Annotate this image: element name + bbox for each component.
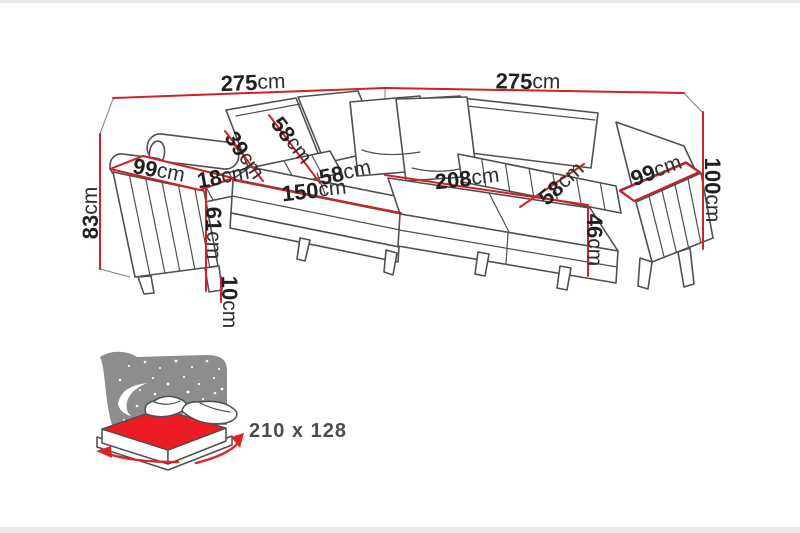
sleeping-area-size-label: 210 x 128 — [249, 420, 347, 442]
length-arrowhead — [231, 433, 244, 448]
label-width-right: 275cm — [495, 68, 560, 94]
sofa-leg — [475, 252, 489, 276]
bottom-edge-strip — [0, 527, 800, 533]
sofa-leg — [638, 258, 652, 289]
corner-sofa-diagram-canvas: 275cm 275cm 83cm 100cm 99cm 18cm 39cm 58… — [0, 0, 800, 533]
top-edge-strip — [0, 0, 800, 3]
sofa-leg — [138, 276, 154, 294]
label-height-back-left: 83cm — [78, 187, 103, 239]
label-width-left: 275cm — [220, 68, 286, 95]
sofa-leg — [297, 238, 310, 261]
sofa-leg — [384, 250, 397, 275]
label-seat-front-height: 46cm — [583, 214, 608, 266]
label-seat-height: 61cm — [202, 207, 227, 259]
sofa-leg — [557, 266, 571, 290]
sofa-bed-sleeping-area-icon — [96, 352, 244, 470]
label-leg-height: 10cm — [218, 276, 243, 328]
label-seat-right-length: 208cm — [434, 162, 501, 194]
sofa-leg — [678, 248, 694, 287]
label-height-back-right: 100cm — [701, 158, 726, 223]
sofa-dimension-diagram-page: 275cm 275cm 83cm 100cm 99cm 18cm 39cm 58… — [0, 0, 800, 533]
